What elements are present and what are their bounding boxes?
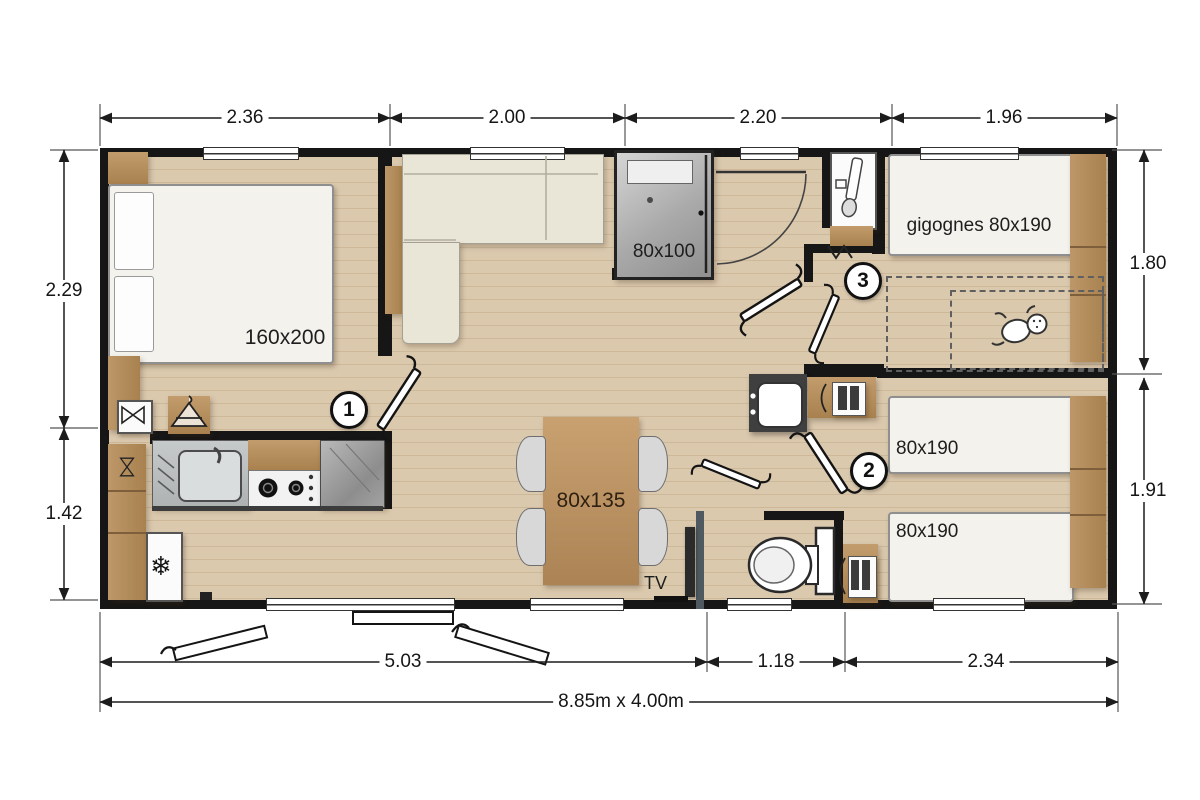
label-tv: TV [644,573,667,594]
dining-chair [516,508,546,566]
window-dining [530,598,624,611]
shower-shelf [627,160,693,184]
master-cabinet [117,400,153,434]
master-wardrobe-top [108,152,148,184]
cabinet-divider [108,532,146,534]
window-living [470,147,565,160]
window-wc [727,598,792,611]
wall-wc-north [764,511,844,520]
tv-screen [685,527,695,597]
entrance-door-opening [266,598,455,611]
gigogne-bed [888,154,1074,256]
dim-left-2: 1.42 [41,503,88,525]
window-bedroom2 [933,598,1025,611]
wardrobe-divider [1070,246,1106,248]
label-twin-bed-bottom: 80x190 [896,521,958,543]
dim-right-1: 1.80 [1125,253,1172,275]
bathroom-vanity [830,152,877,230]
label-master-bed: 160x200 [225,326,345,350]
vanity-wood-base [830,226,873,246]
wall-tv-partition [696,511,704,609]
counter-wood [248,440,320,470]
counter-shadow [152,506,383,511]
dim-bottom-3: 2.34 [963,651,1010,673]
room-marker-3: 3 [844,262,882,300]
floorplan-canvas: ❄ 1 2 3 [0,0,1200,800]
label-shower: 80x100 [613,241,715,263]
wall-wc-east [834,511,843,609]
sofa-chaise [402,242,460,344]
window-bedroom3 [920,147,1019,160]
wall-vanity-west [822,148,830,228]
room-marker-2: 2 [850,452,888,490]
gigogne-pullout-inner [950,290,1104,370]
wall-vestibule [804,364,884,377]
window-bathroom [740,147,799,160]
entrance-leaf-left [172,625,269,662]
sofa-back [402,154,604,244]
room-marker-1: 1 [330,391,368,429]
dining-chair [638,508,668,566]
tv-stand [654,596,688,602]
bedroom2-wardrobe [1070,396,1106,588]
master-pillow-2 [114,276,154,352]
label-gigogne-beds: gigognes 80x190 [888,215,1070,237]
dim-bottom-2: 1.18 [753,651,800,673]
dim-bottom-1: 5.03 [380,651,427,673]
dining-chair [638,436,668,492]
dining-chair [516,436,546,492]
wall-bathroom-corner [804,244,813,282]
cooktop [248,470,322,508]
wardrobe-divider [1070,468,1106,470]
snowflake-icon: ❄ [150,553,172,579]
twin-bed-top [888,396,1074,474]
label-dining-table: 80x135 [543,489,639,513]
kitchen-cabinets [108,444,146,600]
master-clothes-rack [168,396,210,434]
dim-top-4: 1.96 [981,107,1028,129]
dim-top-3: 2.20 [735,107,782,129]
desk-chair-bottom [848,556,877,598]
washbasin [757,382,803,428]
sofa-side-shelf [385,166,402,314]
worktop-stone [320,440,385,508]
entrance-panel [352,611,454,625]
window-master [203,147,299,160]
wardrobe-divider [1070,514,1106,516]
desk-chair-top [832,382,866,416]
dim-right-2: 1.91 [1125,480,1172,502]
dim-overall: 8.85m x 4.00m [553,691,689,713]
label-twin-bed-top: 80x190 [896,438,958,460]
cabinet-divider [108,490,146,492]
dim-left-1: 2.29 [41,280,88,302]
master-pillow-1 [114,192,154,270]
dim-top-2: 2.00 [484,107,531,129]
entrance-leaf-right [454,624,550,665]
dim-top-1: 2.36 [222,107,269,129]
floor-vent [200,592,212,600]
sink-bowl [178,450,242,502]
